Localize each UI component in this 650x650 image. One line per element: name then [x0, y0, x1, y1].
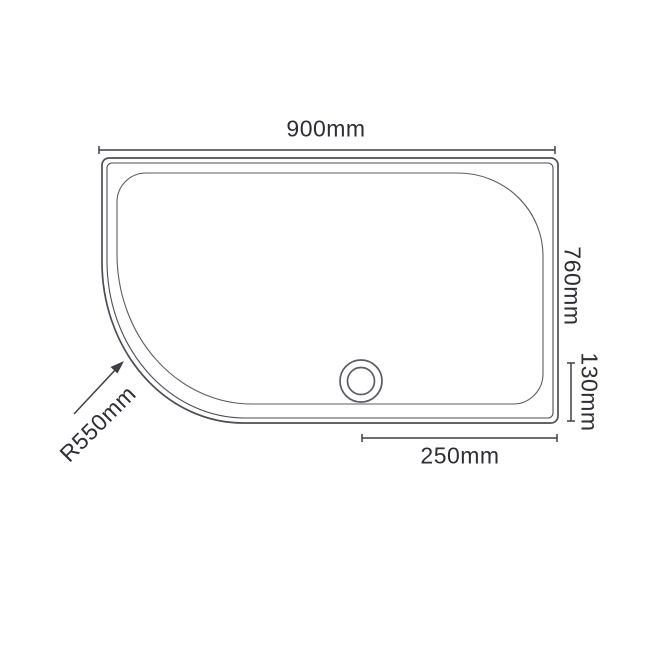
waste-offset-bottom-label: 130mm [578, 352, 601, 431]
tray-top-view-drawing [0, 0, 650, 650]
drain-waste-circle-icon [340, 360, 382, 402]
tray-inner-edge [107, 163, 553, 418]
waste-offset-right-dimension-line [362, 434, 557, 442]
dimension-lines [74, 146, 575, 442]
width-dimension-label: 900mm [286, 118, 365, 141]
tray-basin-edge [117, 173, 543, 404]
depth-dimension-label: 760mm [561, 246, 584, 325]
shower-tray-dimension-diagram: 900mm 760mm 130mm 250mm R550mm [0, 0, 650, 650]
radius-arrowhead [111, 361, 125, 374]
tray-outer-edge [102, 158, 558, 423]
waste-offset-right-label: 250mm [420, 445, 499, 468]
drain-outer-ring [340, 360, 382, 402]
width-dimension-line [99, 146, 555, 154]
waste-offset-bottom-dimension-line [567, 363, 575, 421]
tray-rim [102, 158, 558, 423]
drain-inner-ring [348, 368, 375, 395]
